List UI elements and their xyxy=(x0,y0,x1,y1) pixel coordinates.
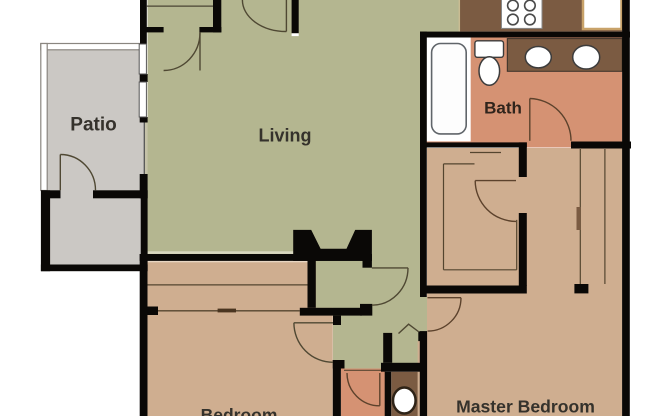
svg-text:Bedroom: Bedroom xyxy=(201,405,278,416)
svg-text:Bath: Bath xyxy=(484,99,522,118)
svg-text:Patio: Patio xyxy=(70,115,116,136)
svg-text:Living: Living xyxy=(259,126,312,146)
svg-text:Master Bedroom: Master Bedroom xyxy=(456,396,595,416)
